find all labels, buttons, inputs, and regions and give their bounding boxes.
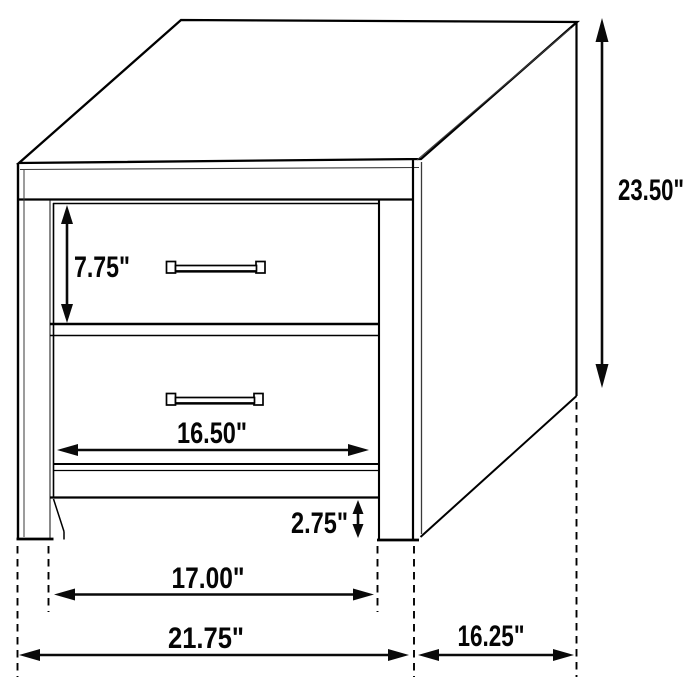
dimension-top-drawer-height: 7.75" [61,205,130,323]
handle-1-left-cap [167,262,176,274]
dim-21-75-arrowhead-right [388,649,409,661]
dimension-drawer-width: 16.50" [57,417,369,456]
dim-7-75-label: 7.75" [74,251,130,284]
dim-21-75-label: 21.75" [168,622,244,655]
handle-1-bar [176,266,257,272]
dim-17-00-label: 17.00" [172,562,245,595]
dim-2-75-arrowhead-up [353,500,364,514]
handle-1-right-cap [256,262,265,274]
handle-2-right-cap [254,394,263,406]
handle-2-left-cap [167,394,176,406]
side-panel-bottom-edge [421,396,577,537]
dimension-depth: 16.25" [418,620,574,661]
drawer-1-handle [167,262,266,274]
dim-7-75-arrowhead-up [61,205,73,224]
dim-23-50-arrowhead-up [596,18,609,42]
dim-2-75-label: 2.75" [291,507,348,540]
dim-2-75-arrowhead-down [353,524,364,538]
dim-17-00-arrowhead-left [54,589,75,601]
diagram-canvas: 7.75" 23.50" 16.50" 2.75" 17 [0,0,700,700]
dim-16-25-label: 16.25" [458,620,525,653]
dimension-leg-span: 17.00" [54,562,374,601]
dim-23-50-label: 23.50" [618,174,684,207]
dim-16-50-arrowhead-right [348,444,369,456]
drawer-2-handle [167,394,264,406]
dimension-base-clearance: 2.75" [291,500,364,540]
dim-7-75-arrowhead-down [61,304,73,323]
dim-16-50-arrowhead-left [57,444,78,456]
dimension-overall-height: 23.50" [596,18,685,388]
dim-17-00-arrowhead-right [353,589,374,601]
dim-16-25-arrowhead-left [418,649,439,661]
handle-2-bar [176,398,255,404]
dim-23-50-arrowhead-down [596,364,609,388]
nightstand-dimension-diagram: 7.75" 23.50" 16.50" 2.75" 17 [0,0,700,700]
dim-16-50-label: 16.50" [177,417,247,450]
dim-21-75-arrowhead-left [19,649,40,661]
dim-16-25-arrowhead-right [553,649,574,661]
tabletop-top-face [19,20,577,163]
dimension-overall-width: 21.75" [19,622,409,661]
left-leg-bracket-diagonal [54,499,65,532]
tabletop-front-edge-inner-line [20,168,419,170]
